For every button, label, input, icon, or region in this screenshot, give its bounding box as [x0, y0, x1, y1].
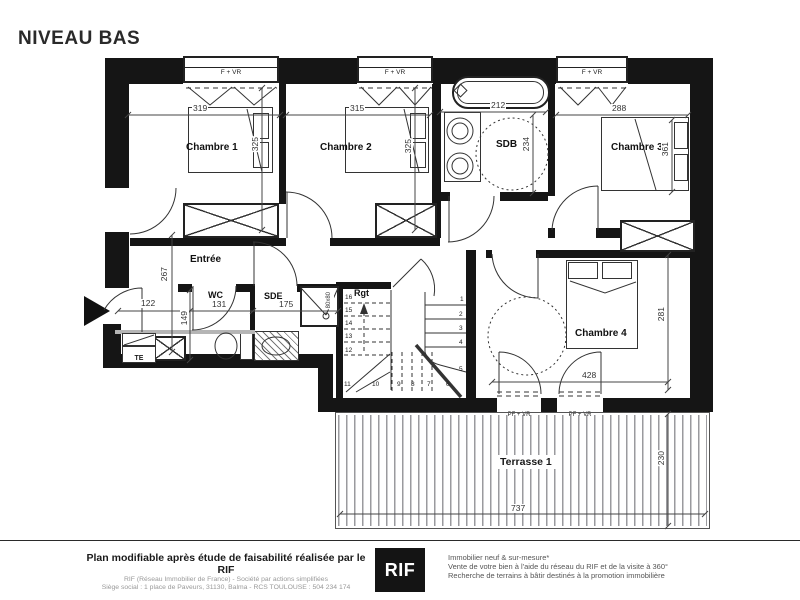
room-label-entree: Entrée	[190, 254, 221, 265]
footer-company-line1: RIF (Réseau Immobilier de France) - Soci…	[78, 576, 374, 584]
stair-step-number: 6	[446, 381, 450, 388]
room-label-terrasse: Terrasse 1	[496, 455, 556, 469]
window-f-vr-1: F + VR	[183, 56, 279, 83]
stair-step-number: 8	[411, 381, 415, 388]
stair-step-number: 10	[372, 381, 379, 388]
wall-segment	[486, 250, 492, 258]
window-frame	[359, 58, 431, 68]
dim-label: 212	[490, 101, 506, 110]
wall-segment	[130, 238, 286, 246]
footer-divider	[0, 540, 800, 541]
stair-step-number: 16	[345, 294, 352, 301]
pillow	[602, 262, 632, 279]
closet-entree	[153, 336, 186, 361]
entrance-arrow-icon	[84, 296, 110, 326]
window-label: F + VR	[359, 69, 431, 76]
wall-segment	[279, 84, 286, 204]
wall-segment	[330, 238, 440, 246]
window-label: F + VR	[185, 69, 277, 76]
dim-label: 131	[211, 300, 227, 309]
dim-label: 175	[278, 300, 294, 309]
wall-segment	[105, 58, 129, 188]
dim-label-shower: 80x80	[325, 291, 334, 309]
wall-segment	[178, 284, 192, 292]
dim-label: 288	[611, 104, 627, 113]
wall-segment	[466, 250, 476, 398]
dim-label: 315	[349, 104, 365, 113]
window-frame	[558, 58, 626, 68]
dim-label: 230	[657, 450, 666, 466]
window-f-vr-2: F + VR	[357, 56, 433, 83]
window-pf-vr-2: PF + VR	[557, 398, 603, 412]
washbasin-sde	[254, 331, 299, 361]
dim-label: 122	[140, 299, 156, 308]
room-label-sdb: SDB	[496, 139, 517, 150]
dim-label: 737	[510, 504, 526, 513]
dim-label: 361	[661, 141, 670, 157]
footer-services-block: Immobilier neuf & sur-mesure* Vente de v…	[448, 553, 788, 580]
footer-company-line2: Siège social : 1 place de Paveurs, 31130…	[78, 584, 374, 592]
rif-logo: RIF	[375, 548, 425, 592]
stair-step-number: 12	[345, 347, 352, 354]
wall-segment	[548, 228, 555, 238]
stairs-up-arrow-icon	[360, 303, 368, 314]
room-label-rgt: Rgt	[354, 288, 369, 298]
window-pf-vr-1: PF + VR	[497, 398, 541, 412]
footer-claim: Plan modifiable après étude de faisabili…	[78, 552, 374, 576]
wall-segment	[541, 398, 557, 412]
stair-step-number: 1	[460, 296, 464, 303]
closet-chambre4	[620, 220, 695, 252]
stair-step-number: 4	[459, 339, 463, 346]
te-box-top	[122, 333, 156, 346]
dim-label: 325	[251, 136, 260, 152]
pillow	[674, 122, 688, 149]
dim-label: 234	[522, 136, 531, 152]
footer-service-line: Immobilier neuf & sur-mesure*	[448, 553, 788, 562]
closet-chambre1	[183, 203, 279, 238]
wall-segment	[500, 192, 548, 201]
stair-step-number: 2	[459, 311, 463, 318]
room-label-chambre3: Chambre 3	[611, 142, 663, 153]
wall-segment	[548, 84, 555, 196]
dim-label: 319	[192, 104, 208, 113]
stair-step-number: 11	[344, 381, 351, 388]
wall-segment	[279, 58, 357, 84]
floor-plan: F + VR F + VR F + VR PF + VR PF + VR	[0, 0, 800, 600]
stair-step-number: 13	[345, 333, 352, 340]
dim-label: 428	[581, 371, 597, 380]
stair-step-number: 9	[397, 381, 401, 388]
window-frame	[185, 58, 277, 68]
footer-service-line: Vente de votre bien à l'aide du réseau d…	[448, 562, 788, 571]
stair-step-number: 5	[459, 366, 463, 373]
dim-label: 267	[160, 266, 169, 282]
wall-segment	[333, 398, 497, 412]
toilet-tank	[240, 331, 253, 360]
stair-step-number: 14	[345, 320, 352, 327]
stair-step-number: 3	[459, 325, 463, 332]
footer-service-line: Recherche de terrains à bâtir destinés à…	[448, 571, 788, 580]
room-label-chambre2: Chambre 2	[320, 142, 372, 153]
closet-chambre2	[375, 203, 437, 238]
dim-label: 281	[657, 306, 666, 322]
stair-step-number: 7	[427, 381, 431, 388]
room-label-chambre4: Chambre 4	[575, 328, 627, 339]
pillow	[410, 113, 426, 139]
pillow	[568, 262, 598, 279]
dim-label: 325	[404, 138, 413, 154]
wall-segment	[105, 232, 129, 288]
double-washbasin-counter	[444, 112, 481, 182]
wall-segment	[318, 368, 333, 412]
te-box: TE	[122, 346, 156, 363]
window-label: F + VR	[558, 69, 626, 76]
wall-segment	[432, 192, 450, 201]
footer-left-block: Plan modifiable après étude de faisabili…	[78, 552, 374, 592]
stair-step-number: 15	[345, 307, 352, 314]
pillow	[674, 154, 688, 181]
dim-label: 149	[180, 310, 189, 326]
window-f-vr-3: F + VR	[556, 56, 628, 83]
room-label-chambre1: Chambre 1	[186, 142, 238, 153]
te-label: TE	[135, 355, 144, 362]
floor-plan-page: NIVEAU BAS	[0, 0, 800, 600]
